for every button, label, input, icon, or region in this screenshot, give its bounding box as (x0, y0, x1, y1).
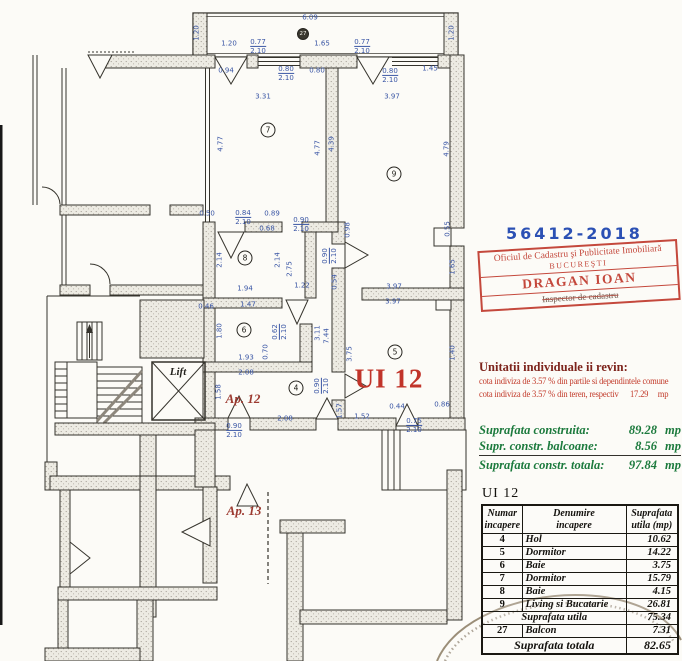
allocation-block: Unitatii individuale ii revin: cota indi… (479, 361, 682, 401)
dimension-label: 1.40 (449, 345, 456, 361)
room-number: 4 (289, 381, 304, 396)
table-row: Suprafata totala82.65 (482, 638, 678, 655)
dimension-label: 0.44 (389, 403, 405, 410)
balcony-area-value: 8.56 (615, 439, 657, 455)
dimension-label: 3.11 (314, 325, 321, 341)
allocation-line-2-value: 17.29 (630, 389, 648, 399)
table-caption: UI 12 (482, 486, 519, 502)
cadastre-office-stamp: Oficiul de Cadastru şi Publicitate Imobi… (477, 239, 680, 312)
dimension-label: 0.46 (198, 303, 214, 310)
dimension-label: 6.09 (302, 14, 318, 21)
dimension-label: 0.70 (262, 344, 269, 360)
table-header-row: NumarincapereDenumireincapereSuprafataut… (482, 505, 678, 534)
table-column-header: Numarincapere (482, 505, 522, 534)
built-area-value: 89.28 (615, 423, 657, 439)
dimension-label: 1.65 (449, 259, 456, 275)
room-number: 7 (261, 123, 276, 138)
dimension-label: 2.14 (216, 252, 223, 268)
table-row: 6Baie3.75 (482, 560, 678, 573)
dimension-label: 3.97 (384, 93, 400, 100)
dimension-label: 0.622.10 (272, 324, 288, 340)
unit-label: UI 12 (355, 364, 424, 395)
dimension-label: 0.54 (331, 274, 338, 290)
dimension-label: 4.79 (443, 141, 450, 157)
table-column-header: Denumireincapere (522, 505, 626, 534)
allocation-line-2-unit: mp (658, 389, 669, 399)
dimension-label: 2.08 (238, 369, 254, 376)
total-area-row: Suprafata constr. totala: 97.84 mp (479, 458, 681, 474)
dimension-label: 4.39 (328, 136, 335, 152)
dimension-label: 2.75 (286, 261, 293, 277)
dimension-label: 1.47 (240, 301, 256, 308)
dimension-label: 1.94 (237, 285, 253, 292)
dimension-label: 0.902.10 (314, 378, 330, 394)
dimension-label: 0.902.10 (226, 423, 242, 439)
built-area-row: Suprafata construita: 89.28 mp (479, 423, 681, 439)
balcony-area-row: Supr. constr. balcoane: 8.56 mp (479, 439, 681, 455)
apt-label: Ap. 13 (227, 503, 262, 519)
area-divider (479, 455, 681, 456)
dimension-label: 2.14 (274, 252, 281, 268)
lift-label: Lift (170, 366, 187, 378)
dimension-label: 1.20 (221, 40, 237, 47)
room-number: 27 (297, 28, 309, 40)
dimension-label: 7.44 (323, 328, 330, 344)
dimension-label: 0.772.10 (354, 39, 370, 55)
balcony-area-label: Supr. constr. balcoane: (479, 439, 615, 455)
table-row: 27Balcon7.31 (482, 625, 678, 638)
table-row: 9Living si Bucatarie26.81 (482, 599, 678, 612)
cadastral-plan-page: 6.091.201.201.200.772.101.650.772.100.94… (0, 0, 682, 661)
room-area-table: NumarincapereDenumireincapereSuprafataut… (481, 504, 679, 655)
dimension-label: 0.842.10 (235, 210, 251, 226)
built-area-label: Suprafata construita: (479, 423, 615, 439)
dimension-label: 0.89 (264, 210, 280, 217)
dimension-label: 1.80 (216, 323, 223, 339)
total-area-label: Suprafata constr. totala: (479, 458, 615, 474)
dimension-label: 1.57 (336, 403, 343, 419)
dimension-label: 1.65 (314, 40, 330, 47)
dimension-label: 0.802.10 (382, 68, 398, 84)
allocation-line-1: cota indiviza de 3.57 % din partile si d… (479, 375, 672, 388)
dimension-label: 1.52 (354, 413, 370, 420)
dimension-label: 0.802.10 (278, 66, 294, 82)
dimension-label: 1.22 (294, 282, 310, 289)
dimension-label: 1.93 (238, 354, 254, 361)
room-number: 8 (238, 251, 253, 266)
dimension-label: 0.50 (199, 210, 215, 217)
dimension-label: 3.97 (386, 283, 402, 290)
dimension-label: 4.77 (217, 136, 224, 152)
dimension-label: 0.80 (309, 67, 325, 74)
built-area-unit: mp (657, 423, 681, 439)
total-area-value: 97.84 (615, 458, 657, 474)
dimension-label: 0.86 (434, 401, 450, 408)
dimension-label: 1.58 (215, 384, 222, 400)
dimension-label: 1.45 (422, 65, 438, 72)
registration-number: 56412-2018 (506, 224, 643, 243)
allocation-title: Unitatii individuale ii revin: (479, 361, 682, 375)
dimension-label: 0.902.10 (322, 248, 338, 264)
table-row: 4Hol10.62 (482, 534, 678, 547)
dimension-label: 3.31 (255, 93, 271, 100)
dimension-label: 0.772.10 (250, 39, 266, 55)
table-row: 5Dormitor14.22 (482, 547, 678, 560)
dimension-label: 3.97 (385, 298, 401, 305)
table-row: Suprafata utila75.34 (482, 612, 678, 625)
dimension-label: 0.68 (259, 225, 275, 232)
dimension-label: 0.98 (344, 222, 351, 238)
dimension-label: 0.752.10 (406, 418, 422, 434)
apt-label: Ap. 12 (226, 391, 261, 407)
allocation-line-2-text: cota indiviza de 3.57 % din teren, respe… (479, 389, 619, 399)
table-row: 7Dormitor15.79 (482, 573, 678, 586)
dimension-label: 2.08 (277, 415, 293, 422)
table-column-header: Suprafatautila (mp) (626, 505, 678, 534)
dimension-label: 1.20 (193, 25, 200, 41)
table-row: 8Baie4.15 (482, 586, 678, 599)
dimension-label: 0.902.10 (293, 217, 309, 233)
dimension-label: 4.77 (314, 140, 321, 156)
balcony-area-unit: mp (657, 439, 681, 455)
area-summary-block: Suprafata construita: 89.28 mp Supr. con… (479, 423, 681, 474)
total-area-unit: mp (657, 458, 681, 474)
room-number: 5 (388, 345, 403, 360)
allocation-line-2: cota indiviza de 3.57 % din teren, respe… (479, 388, 672, 401)
dimension-label: 0.94 (218, 67, 234, 74)
dimension-label: 0.55 (444, 221, 451, 237)
dimension-label: 3.75 (346, 346, 353, 362)
dimension-label: 1.20 (448, 25, 455, 41)
room-number: 6 (237, 323, 252, 338)
room-number: 9 (387, 167, 402, 182)
